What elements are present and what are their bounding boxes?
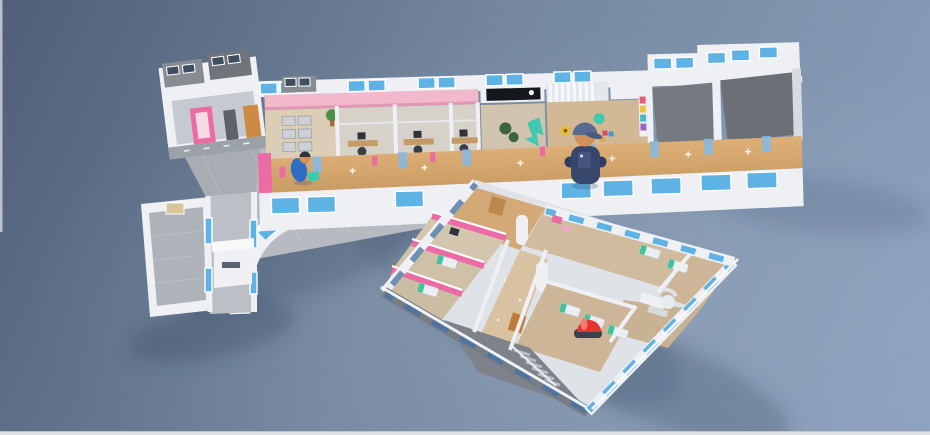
plant-pot bbox=[330, 120, 334, 126]
window bbox=[701, 174, 731, 191]
window bbox=[271, 197, 299, 214]
entrance-corridor bbox=[205, 192, 257, 314]
siren-highlight bbox=[581, 318, 588, 330]
guard-chest-panel bbox=[578, 152, 591, 168]
window bbox=[418, 77, 435, 88]
window bbox=[554, 72, 571, 83]
window bbox=[675, 57, 693, 68]
reception-window bbox=[166, 203, 184, 214]
reception-room bbox=[480, 85, 546, 154]
empty-room-floor bbox=[720, 72, 800, 142]
pink-sign bbox=[279, 167, 285, 178]
playroom bbox=[546, 80, 650, 152]
window bbox=[486, 74, 503, 85]
skylight-window bbox=[227, 54, 240, 63]
window bbox=[603, 180, 633, 197]
floorplan-3d-render bbox=[0, 0, 930, 435]
corridor-column bbox=[516, 215, 528, 245]
skylight-window bbox=[212, 56, 225, 65]
window bbox=[438, 77, 455, 88]
window bbox=[205, 268, 212, 292]
desk bbox=[348, 140, 378, 147]
window bbox=[653, 58, 671, 69]
offices bbox=[335, 102, 481, 158]
window bbox=[307, 196, 335, 213]
guard-badge bbox=[580, 154, 583, 157]
window bbox=[205, 218, 212, 244]
window bbox=[707, 52, 725, 63]
entrance-door bbox=[222, 262, 240, 268]
pink-accent-wall bbox=[258, 153, 272, 197]
window bbox=[260, 83, 277, 94]
skylight-window bbox=[285, 78, 296, 86]
cleaning-cart bbox=[307, 171, 319, 182]
window bbox=[759, 47, 777, 58]
entrance-vestibule bbox=[141, 197, 214, 317]
window bbox=[395, 191, 423, 208]
window bbox=[368, 80, 385, 91]
monitor bbox=[459, 129, 467, 136]
toy-block bbox=[609, 131, 614, 136]
window bbox=[731, 50, 749, 61]
skylight-window bbox=[299, 78, 310, 86]
skylight-window bbox=[166, 66, 179, 75]
window bbox=[747, 172, 777, 189]
monitor bbox=[413, 131, 421, 138]
monitor bbox=[357, 132, 365, 139]
window bbox=[574, 71, 591, 82]
empty-room-floor bbox=[652, 82, 718, 148]
toy-block bbox=[602, 131, 607, 136]
scene-viewport[interactable] bbox=[0, 0, 930, 435]
desk bbox=[452, 137, 478, 144]
window bbox=[506, 74, 523, 85]
desk bbox=[404, 138, 434, 145]
frame-edge-left bbox=[0, 0, 3, 232]
waiting-area bbox=[265, 108, 339, 160]
vestibule-floor bbox=[149, 207, 206, 306]
frame-edge-bottom bbox=[0, 432, 930, 435]
window bbox=[651, 178, 681, 195]
window bbox=[348, 80, 365, 91]
elevator-block bbox=[158, 48, 267, 159]
skylight-window bbox=[182, 64, 195, 73]
toy-shelf bbox=[639, 94, 648, 136]
